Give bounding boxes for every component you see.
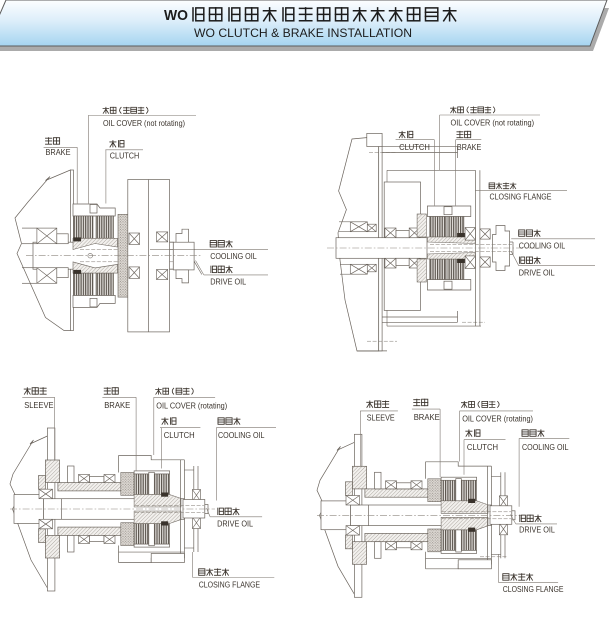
svg-text:CLOSING FLANGE: CLOSING FLANGE — [199, 581, 261, 590]
svg-text:WO CLUTCH & BRAKE INSTALLATION: WO CLUTCH & BRAKE INSTALLATION — [194, 26, 412, 40]
svg-text:CLUTCH: CLUTCH — [110, 152, 140, 161]
svg-text:BRAKE: BRAKE — [46, 148, 71, 157]
svg-text:OIL COVER (rotating): OIL COVER (rotating) — [462, 415, 533, 424]
svg-text:WO: WO — [164, 7, 188, 24]
svg-text:DRIVE OIL: DRIVE OIL — [210, 277, 246, 286]
svg-text:DRIVE OIL: DRIVE OIL — [217, 519, 253, 528]
svg-text:CLUTCH: CLUTCH — [467, 443, 498, 452]
svg-text:OIL COVER (not rotating): OIL COVER (not rotating) — [103, 119, 185, 128]
svg-text:BRAKE: BRAKE — [414, 413, 440, 422]
svg-text:CLUTCH: CLUTCH — [164, 431, 195, 440]
svg-text:COOLING OIL: COOLING OIL — [519, 242, 566, 251]
svg-text:CLUTCH: CLUTCH — [399, 143, 430, 152]
svg-text:BRAKE: BRAKE — [104, 401, 130, 410]
svg-text:OIL COVER (not rotating): OIL COVER (not rotating) — [451, 118, 535, 127]
svg-text:COOLING OIL: COOLING OIL — [218, 431, 265, 440]
svg-text:OIL COVER (rotating): OIL COVER (rotating) — [156, 402, 227, 411]
svg-text:DRIVE OIL: DRIVE OIL — [519, 269, 555, 278]
svg-text:COOLING OIL: COOLING OIL — [522, 443, 569, 452]
svg-text:CLOSING FLANGE: CLOSING FLANGE — [490, 192, 552, 201]
svg-text:SLEEVE: SLEEVE — [24, 401, 54, 410]
svg-text:CLOSING FLANGE: CLOSING FLANGE — [503, 585, 564, 594]
svg-text:COOLING OIL: COOLING OIL — [210, 252, 257, 261]
svg-text:SLEEVE: SLEEVE — [367, 414, 395, 423]
svg-text:BRAKE: BRAKE — [457, 143, 482, 152]
svg-text:DRIVE OIL: DRIVE OIL — [519, 526, 555, 535]
